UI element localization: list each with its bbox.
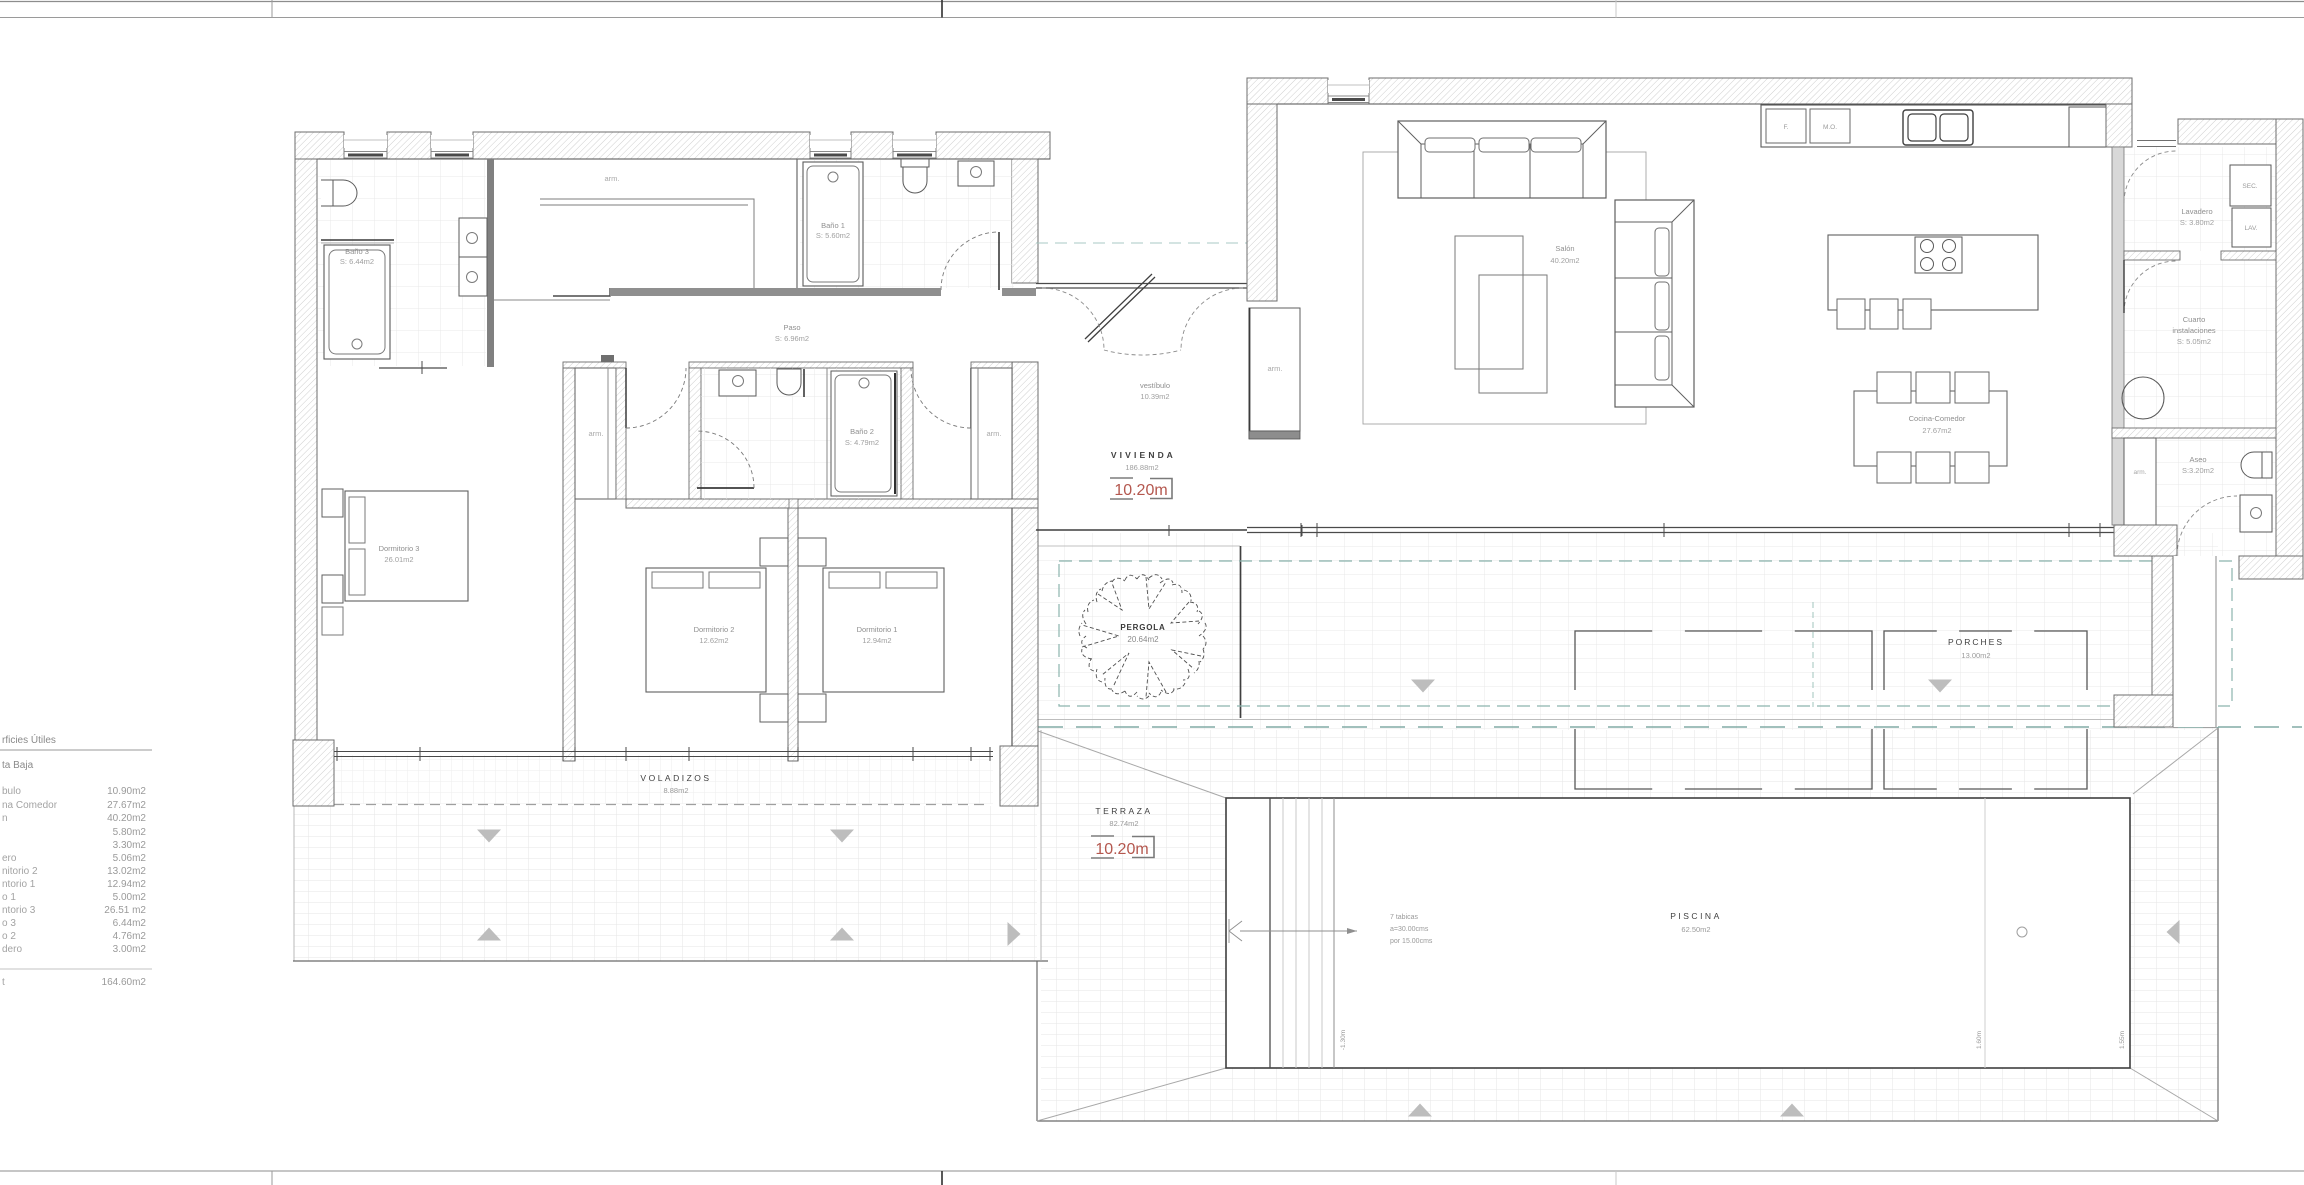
svg-text:10.20m: 10.20m (1095, 841, 1148, 858)
svg-text:Salón: Salón (1555, 244, 1574, 253)
svg-text:S:3.20m2: S:3.20m2 (2182, 466, 2214, 475)
svg-text:t: t (2, 977, 5, 988)
svg-text:ta Baja: ta Baja (2, 760, 34, 771)
svg-text:instalaciones: instalaciones (2172, 326, 2216, 335)
svg-text:10.39m2: 10.39m2 (1140, 392, 1169, 401)
svg-text:164.60m2: 164.60m2 (102, 977, 147, 988)
svg-text:3.30m2: 3.30m2 (113, 840, 147, 851)
svg-text:arm.: arm. (1268, 364, 1283, 373)
svg-text:27.67m2: 27.67m2 (107, 800, 146, 811)
svg-text:Dormitorio 2: Dormitorio 2 (694, 625, 735, 634)
svg-text:TERRAZA: TERRAZA (1095, 806, 1152, 816)
svg-text:arm.: arm. (605, 174, 620, 183)
svg-text:1.55m: 1.55m (2119, 1031, 2126, 1049)
svg-text:a=30.00cms: a=30.00cms (1390, 926, 1429, 933)
svg-text:82.74m2: 82.74m2 (1109, 819, 1138, 828)
svg-text:Dormitorio 1: Dormitorio 1 (857, 625, 898, 634)
svg-text:Cocina-Comedor: Cocina-Comedor (1909, 414, 1966, 423)
svg-text:27.67m2: 27.67m2 (1922, 426, 1951, 435)
svg-text:12.94m2: 12.94m2 (862, 636, 891, 645)
svg-text:7 tabicas: 7 tabicas (1390, 914, 1419, 921)
svg-text:S: 5.60m2: S: 5.60m2 (816, 231, 850, 240)
svg-text:o 3: o 3 (2, 918, 16, 929)
svg-text:S: 4.79m2: S: 4.79m2 (845, 438, 879, 447)
svg-text:V I V I E N D A: V I V I E N D A (1111, 450, 1173, 460)
svg-text:S: 6.96m2: S: 6.96m2 (775, 334, 809, 343)
svg-text:rficies Útiles: rficies Útiles (2, 733, 56, 746)
svg-text:Lavadero: Lavadero (2181, 207, 2212, 216)
svg-text:S: 5.05m2: S: 5.05m2 (2177, 337, 2211, 346)
svg-text:n: n (2, 813, 8, 824)
svg-text:ntorio 3: ntorio 3 (2, 905, 36, 916)
svg-text:10.20m: 10.20m (1114, 482, 1167, 499)
svg-text:LAV.: LAV. (2244, 225, 2257, 232)
svg-text:nitorio 2: nitorio 2 (2, 866, 38, 877)
svg-text:na Comedor: na Comedor (2, 800, 58, 811)
svg-text:5.06m2: 5.06m2 (113, 853, 147, 864)
svg-text:SEC.: SEC. (2242, 183, 2257, 190)
svg-text:o 2: o 2 (2, 931, 16, 942)
svg-text:26.51 m2: 26.51 m2 (104, 905, 146, 916)
svg-text:5.80m2: 5.80m2 (113, 827, 147, 838)
svg-text:13.02m2: 13.02m2 (107, 866, 146, 877)
svg-text:M.O.: M.O. (1823, 124, 1837, 131)
svg-text:arm.: arm. (589, 429, 604, 438)
svg-text:12.62m2: 12.62m2 (699, 636, 728, 645)
svg-text:arm.: arm. (2134, 469, 2147, 476)
svg-text:5.00m2: 5.00m2 (113, 892, 147, 903)
svg-text:6.44m2: 6.44m2 (113, 918, 147, 929)
svg-text:Baño 2: Baño 2 (850, 427, 874, 436)
svg-text:Baño 1: Baño 1 (821, 221, 845, 230)
svg-text:1.60m: 1.60m (1976, 1031, 1983, 1049)
svg-text:40.20m2: 40.20m2 (107, 813, 146, 824)
svg-text:ntorio 1: ntorio 1 (2, 879, 36, 890)
svg-text:Dormitorio 3: Dormitorio 3 (379, 544, 420, 553)
svg-text:26.01m2: 26.01m2 (384, 555, 413, 564)
svg-text:Paso: Paso (783, 323, 800, 332)
svg-text:dero: dero (2, 944, 22, 955)
svg-text:VOLADIZOS: VOLADIZOS (640, 773, 711, 783)
svg-text:PISCINA: PISCINA (1670, 911, 1722, 921)
svg-text:12.94m2: 12.94m2 (107, 879, 146, 890)
svg-text:arm.: arm. (987, 429, 1002, 438)
svg-text:Cuarto: Cuarto (2183, 315, 2206, 324)
svg-text:ero: ero (2, 853, 17, 864)
svg-text:Baño 3: Baño 3 (345, 247, 369, 256)
svg-text:4.76m2: 4.76m2 (113, 931, 147, 942)
svg-text:62.50m2: 62.50m2 (1681, 925, 1710, 934)
svg-text:10.90m2: 10.90m2 (107, 786, 146, 797)
svg-text:186.88m2: 186.88m2 (1125, 463, 1158, 472)
svg-text:3.00m2: 3.00m2 (113, 944, 147, 955)
svg-text:S: 6.44m2: S: 6.44m2 (340, 257, 374, 266)
svg-text:vestíbulo: vestíbulo (1140, 381, 1170, 390)
svg-text:13.00m2: 13.00m2 (1961, 651, 1990, 660)
svg-text:bulo: bulo (2, 786, 21, 797)
svg-text:F.: F. (1783, 124, 1788, 131)
svg-text:por 15.00cms: por 15.00cms (1390, 938, 1433, 945)
svg-text:40.20m2: 40.20m2 (1550, 256, 1579, 265)
svg-text:PERGOLA: PERGOLA (1120, 623, 1165, 632)
svg-text:-1.30m: -1.30m (1340, 1030, 1347, 1050)
svg-text:20.64m2: 20.64m2 (1127, 635, 1159, 644)
svg-text:8.88m2: 8.88m2 (663, 786, 688, 795)
svg-text:Aseo: Aseo (2189, 455, 2206, 464)
svg-text:S: 3.80m2: S: 3.80m2 (2180, 218, 2214, 227)
svg-text:o 1: o 1 (2, 892, 16, 903)
svg-text:PORCHES: PORCHES (1948, 637, 2004, 647)
